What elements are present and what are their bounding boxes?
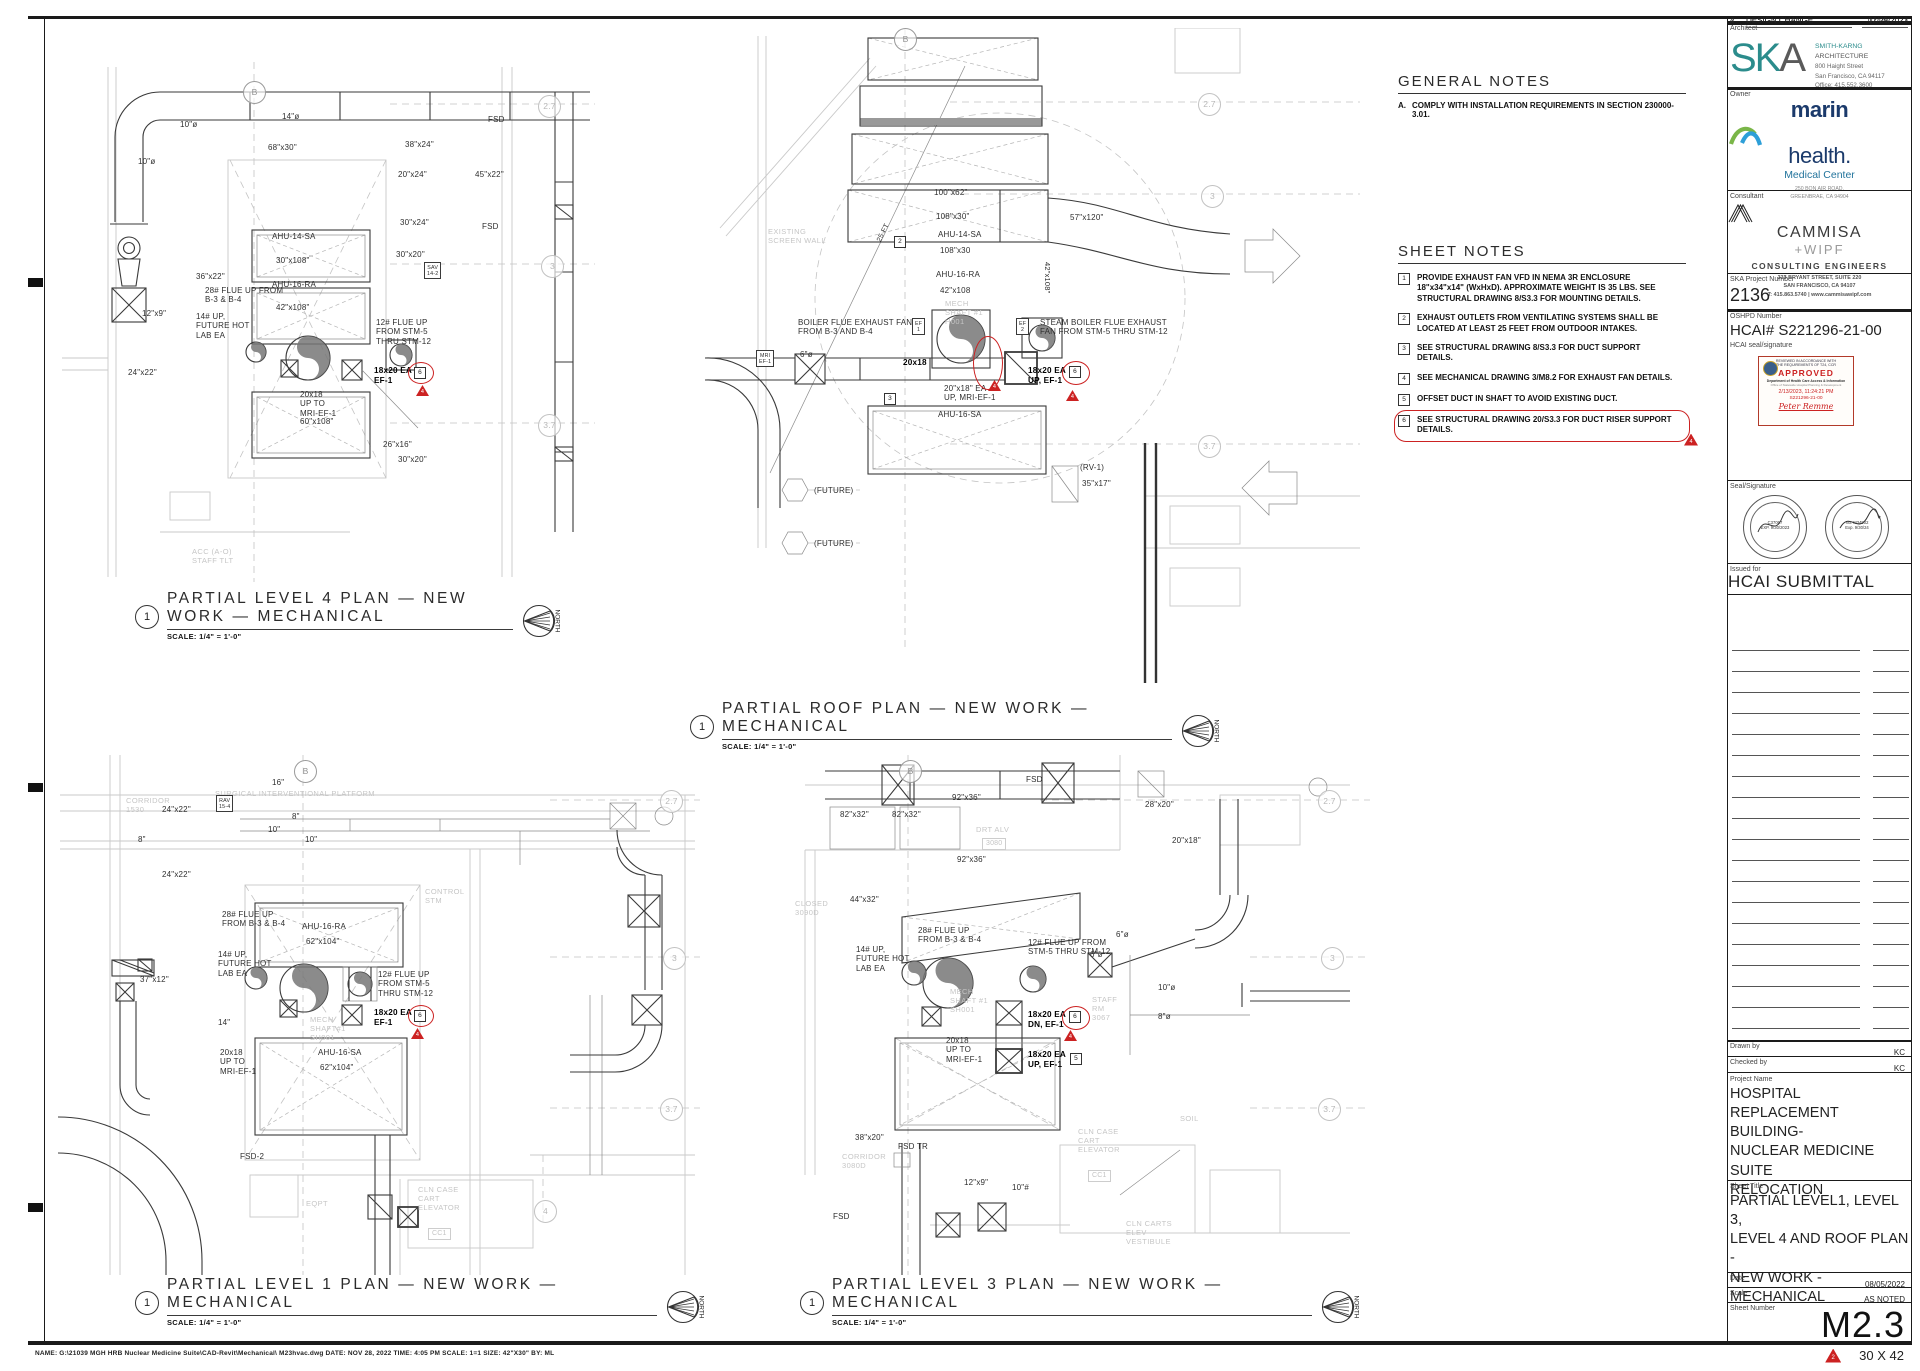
plan-annotation: 14"ø bbox=[282, 112, 299, 121]
plan-annotation: 4 bbox=[411, 1028, 424, 1039]
plan-annotation: MECH SHAFT#1 SH001 bbox=[310, 1016, 346, 1043]
plan-annotation: 12"x9" bbox=[142, 309, 166, 318]
plan-annotation: (RV-1) bbox=[1080, 463, 1104, 472]
plan-annotation: 18x20 EA UP, EF-1 bbox=[1028, 366, 1066, 385]
svg-text:NORTH: NORTH bbox=[1213, 719, 1220, 742]
revision-row: 4 DESIGN CHANGE 01/25/2023 bbox=[1730, 16, 1908, 28]
plan-annotation: 10"# bbox=[1012, 1183, 1029, 1192]
note-text: EXHAUST OUTLETS FROM VENTILATING SYSTEMS… bbox=[1417, 313, 1675, 334]
general-notes: GENERAL NOTES A. COMPLY WITH INSTALLATIO… bbox=[1398, 73, 1686, 119]
plan-annotation: AHU-14-SA bbox=[272, 232, 316, 241]
plan-annotation: 26"x16" bbox=[383, 440, 412, 449]
plan-annotation: 10"ø bbox=[180, 120, 197, 129]
plan-annotation: SAV 14-2 bbox=[424, 262, 441, 279]
title-rule bbox=[722, 739, 1172, 740]
scale-label: Scale bbox=[1730, 1290, 1748, 1297]
plan-annotation: 14# UP, FUTURE HOT LAB EA bbox=[218, 950, 272, 978]
sheet-note-item: 3 SEE STRUCTURAL DRAWING 8/S3.3 FOR DUCT… bbox=[1398, 343, 1686, 364]
plan-title: 1 PARTIAL LEVEL 1 PLAN — NEW WORK — MECH… bbox=[135, 1276, 657, 1327]
plan-annotation: 37"x12" bbox=[140, 975, 169, 984]
plan-annotation: CLN CASE CART ELEVATOR bbox=[1078, 1128, 1120, 1155]
plan-annotation: 4 bbox=[416, 385, 429, 396]
plan-annotation: 10"ø bbox=[1158, 983, 1175, 992]
plan-annotation: 42"x108 bbox=[940, 286, 971, 295]
plan-annotation: (FUTURE) bbox=[814, 539, 853, 548]
plan-annotation: CC1 bbox=[428, 1228, 451, 1240]
sheet-number-label: Sheet Number bbox=[1730, 1305, 1775, 1312]
plan-annotation: ACC (A-O) STAFF TLT bbox=[192, 548, 234, 566]
sheet-note-item: 1 PROVIDE EXHAUST FAN VFD IN NEMA 3R ENC… bbox=[1398, 273, 1686, 304]
note-text: SEE MECHANICAL DRAWING 3/M8.2 FOR EXHAUS… bbox=[1417, 373, 1675, 383]
plan-annotation: 10" bbox=[305, 835, 317, 844]
plan-annotation: CORRIDOR 3080D bbox=[842, 1153, 886, 1171]
approval-date: 2/13/2023, 11:24:21 PM bbox=[1759, 389, 1853, 395]
plan-annotation: 12# FLUE UP FROM STM-5 THRU STM-12 bbox=[378, 970, 433, 998]
plan-annotation: 45"x22" bbox=[475, 170, 504, 179]
plan-annotation: 20"x24" bbox=[398, 170, 427, 179]
title-rule bbox=[832, 1315, 1312, 1316]
plan-annotation: 6 bbox=[414, 367, 426, 379]
plan-scale: SCALE: 1/4" = 1'-0" bbox=[167, 1318, 657, 1327]
plan-title-text: PARTIAL LEVEL 3 PLAN — NEW WORK — MECHAN… bbox=[832, 1276, 1312, 1312]
plan-title-text: PARTIAL LEVEL 1 PLAN — NEW WORK — MECHAN… bbox=[167, 1276, 657, 1312]
plan-annotation: 6 bbox=[414, 1010, 426, 1022]
note-number-box: 3 bbox=[1398, 343, 1410, 355]
revision-number: 4 bbox=[1730, 16, 1746, 28]
plan-annotation: 20x18 UP TO MRI-EF-1 bbox=[946, 1036, 982, 1064]
hcai-number: HCAI# S221296-21-00 bbox=[1730, 322, 1882, 339]
plan-annotation bbox=[973, 336, 1003, 390]
plan-annotations: B10"ø14"ø10"ø68"x30"38"x24"FSD20"x24"45"… bbox=[0, 0, 1920, 1371]
plan-annotation: 12"x9" bbox=[964, 1178, 988, 1187]
plan-annotation: 4 bbox=[1064, 1030, 1077, 1041]
general-notes-title: GENERAL NOTES bbox=[1398, 73, 1686, 94]
plan-annotation: B bbox=[894, 28, 917, 51]
ska-project-label: SKA Project Number bbox=[1730, 276, 1794, 283]
plan-annotation: 3.7 bbox=[660, 1098, 683, 1121]
plan-annotation: 2.7 bbox=[1318, 790, 1341, 813]
plan-annotation: CLOSED 3090D bbox=[795, 900, 828, 918]
plan-annotation: SOIL bbox=[1180, 1115, 1199, 1124]
architect-seal: C37067 EXP. 9/30/2023 bbox=[1743, 495, 1807, 559]
plan-annotation: 5 bbox=[1070, 1053, 1082, 1065]
plan-annotation: 6 bbox=[1069, 366, 1081, 378]
note-text: SEE STRUCTURAL DRAWING 8/S3.3 FOR DUCT S… bbox=[1417, 343, 1675, 364]
plan-annotation: DRT ALV bbox=[976, 826, 1009, 835]
plan-annotation: 3 bbox=[541, 255, 564, 278]
plan-title: 1 PARTIAL LEVEL 3 PLAN — NEW WORK — MECH… bbox=[800, 1276, 1312, 1327]
owner-label: Owner bbox=[1730, 91, 1751, 98]
north-arrow-icon: NORTH bbox=[521, 601, 561, 641]
plan-annotation: 8" bbox=[138, 835, 146, 844]
plan-annotation: 3 bbox=[1201, 185, 1224, 208]
plan-annotation: 24"x22" bbox=[162, 870, 191, 879]
plan-title-text: PARTIAL ROOF PLAN — NEW WORK — MECHANICA… bbox=[722, 700, 1172, 736]
architect-info: SMITH-KARNG ARCHITECTURE 800 Haight Stre… bbox=[1815, 42, 1912, 90]
plan-annotation: 100"x62" bbox=[934, 188, 968, 197]
plan-annotation: 8"ø bbox=[1158, 1012, 1171, 1021]
plan-annotation: 6"ø bbox=[1090, 950, 1103, 959]
plan-annotation: 18x20 EA UP, EF-1 bbox=[1028, 1050, 1066, 1069]
north-arrow-icon: NORTH bbox=[665, 1287, 705, 1327]
plan-annotation: 35"x17" bbox=[1082, 479, 1111, 488]
plan-annotation: FSD-2 bbox=[240, 1152, 264, 1161]
plan-annotation: 6"ø bbox=[1116, 930, 1129, 939]
sheet-notes: SHEET NOTES 1 PROVIDE EXHAUST FAN VFD IN… bbox=[1398, 243, 1686, 436]
revision-triangle-icon: 2 bbox=[1825, 1349, 1841, 1363]
project-name-label: Project Name bbox=[1730, 1076, 1772, 1083]
plan-scale: SCALE: 1/4" = 1'-0" bbox=[167, 632, 513, 641]
plan-annotation: 12# FLUE UP FROM STM-5 THRU STM-12 bbox=[376, 318, 431, 346]
plan-annotation: 30"x24" bbox=[400, 218, 429, 227]
plan-annotation: B bbox=[294, 760, 317, 783]
detail-number-bubble: 1 bbox=[135, 1291, 159, 1315]
note-number-box: 4 bbox=[1398, 373, 1410, 385]
note-number-box: 6 bbox=[1398, 415, 1410, 427]
plan-annotation: 10" bbox=[268, 825, 280, 834]
plan-annotation: B bbox=[899, 760, 922, 783]
oshpd-label: OSHPD Number bbox=[1730, 313, 1782, 320]
note-text: SEE STRUCTURAL DRAWING 20/S3.3 FOR DUCT … bbox=[1417, 415, 1675, 436]
plan-annotation: 3.7 bbox=[1318, 1098, 1341, 1121]
approval-number: S221296-21-00 bbox=[1759, 396, 1853, 401]
plan-annotation: 8" bbox=[292, 812, 300, 821]
plan-annotation: 108"x30" bbox=[936, 212, 970, 221]
plan-annotation: 3.7 bbox=[1198, 435, 1221, 458]
plan-annotation: EF 2 bbox=[1016, 318, 1029, 335]
drawn-by-label: Drawn by bbox=[1730, 1043, 1760, 1050]
plan-annotation: 3080 bbox=[982, 838, 1006, 850]
plan-annotation: 38"x20" bbox=[855, 1133, 884, 1142]
plan-annotation: STEAM BOILER FLUE EXHAUST FAN FROM STM-5… bbox=[1040, 318, 1168, 337]
sheet-title: PARTIAL LEVEL1, LEVEL 3, LEVEL 4 AND ROO… bbox=[1730, 1192, 1912, 1307]
plan-annotation: 62"x104" bbox=[306, 937, 340, 946]
ska-project-number: 2136 bbox=[1730, 285, 1770, 306]
plan-scale: SCALE: 1/4" = 1'-0" bbox=[722, 742, 1172, 751]
plan-annotation: 28# FLUE UP FROM B-3 & B-4 bbox=[222, 910, 285, 929]
plan-annotation: EF 1 bbox=[912, 318, 925, 335]
title-rule bbox=[167, 629, 513, 630]
plan-annotation: (FUTURE) bbox=[814, 486, 853, 495]
plan-annotation: MECH SHAFT #1 H001 bbox=[945, 300, 983, 327]
plan-annotation: FSD bbox=[1026, 775, 1043, 784]
checked-by-label: Checked by bbox=[1730, 1059, 1767, 1066]
plan-annotation: CLN CARTS ELEV VESTIBULE bbox=[1126, 1220, 1172, 1247]
title-block: Architect SKA SMITH-KARNG ARCHITECTURE 8… bbox=[1727, 16, 1912, 1341]
plan-annotation: AHU-16-RA bbox=[936, 270, 980, 279]
svg-text:NORTH: NORTH bbox=[1353, 1295, 1360, 1318]
issued-for-value: HCAI SUBMITTAL bbox=[1728, 572, 1874, 592]
plan-annotation: 2 bbox=[894, 236, 906, 248]
plan-annotation: 10"ø bbox=[138, 157, 155, 166]
title-rule bbox=[167, 1315, 657, 1316]
detail-number-bubble: 1 bbox=[800, 1291, 824, 1315]
plan-annotation: AHU-14-SA bbox=[938, 230, 982, 239]
consultant-label: Consultant bbox=[1730, 193, 1763, 200]
plan-annotation: 62"x104" bbox=[320, 1063, 354, 1072]
hcai-approval-stamp: REVIEWED IN ACCORDANCE WITH THE REQUIREM… bbox=[1758, 356, 1854, 426]
plan-title: 1 PARTIAL LEVEL 4 PLAN — NEW WORK — MECH… bbox=[135, 590, 513, 641]
note-number-box: 1 bbox=[1398, 273, 1410, 285]
plan-annotation: 6"ø bbox=[800, 350, 813, 359]
blank-revision-rows-dates bbox=[1873, 630, 1909, 1038]
plan-annotation: 2.7 bbox=[660, 790, 683, 813]
sheet-note-item: 5 OFFSET DUCT IN SHAFT TO AVOID EXISTING… bbox=[1398, 394, 1686, 406]
sheet-number: M2.3 bbox=[1821, 1304, 1905, 1346]
plan-annotation: 14# UP, FUTURE HOT LAB EA bbox=[856, 945, 910, 973]
date-label: Date bbox=[1730, 1275, 1745, 1282]
plan-annotation: EQPT bbox=[306, 1200, 328, 1209]
plan-annotation: 2.7 bbox=[1198, 93, 1221, 116]
plan-annotation: MRI EF-1 bbox=[756, 350, 774, 367]
general-note-item: A. COMPLY WITH INSTALLATION REQUIREMENTS… bbox=[1398, 101, 1686, 119]
plan-annotation: 24"x22" bbox=[162, 805, 191, 814]
plan-annotation: 3 bbox=[1321, 947, 1344, 970]
plan-title: 1 PARTIAL ROOF PLAN — NEW WORK — MECHANI… bbox=[690, 700, 1172, 751]
plan-title-text2: WORK — MECHANICAL bbox=[167, 608, 513, 626]
plan-annotation: SURGICAL INTERVENTIONAL PLATFORM bbox=[215, 790, 375, 799]
plan-annotation: CONTROL STM bbox=[425, 888, 464, 906]
plan-annotation: AHU-16-RA bbox=[302, 922, 346, 931]
plan-annotation: 44"x32" bbox=[850, 895, 879, 904]
engineer-seal: No. M34902 Exp. 9/30/24 bbox=[1825, 495, 1889, 559]
plan-annotation: FSD bbox=[488, 115, 505, 124]
plan-annotation: 28"x20" bbox=[1145, 800, 1174, 809]
plan-annotation: MECH SHAFT #1 SH001 bbox=[950, 988, 988, 1015]
drawing-sheet: B10"ø14"ø10"ø68"x30"38"x24"FSD20"x24"45"… bbox=[0, 0, 1920, 1371]
plan-annotation: FSD bbox=[833, 1212, 850, 1221]
plan-annotation: 36"x22" bbox=[196, 272, 225, 281]
plan-annotation: 4 bbox=[1066, 390, 1079, 401]
plan-annotation: 30"x20" bbox=[398, 455, 427, 464]
plan-annotation: 28# FLUE UP FROM B-3 & B-4 bbox=[918, 926, 981, 945]
plan-annotation: 28# FLUE UP FROM B-3 & B-4 bbox=[205, 286, 283, 305]
plan-annotation: 14" bbox=[218, 1018, 230, 1027]
plan-annotation: CC1 bbox=[1088, 1170, 1111, 1182]
plan-annotation: 108"x30 bbox=[940, 246, 971, 255]
note-text: OFFSET DUCT IN SHAFT TO AVOID EXISTING D… bbox=[1417, 394, 1675, 404]
plan-annotation: 92"x36" bbox=[957, 855, 986, 864]
north-arrow-icon: NORTH bbox=[1320, 1287, 1360, 1327]
seal-label: Seal/Signature bbox=[1730, 483, 1776, 490]
plan-annotation: 4 bbox=[534, 1200, 557, 1223]
plan-annotation: 3.7 bbox=[538, 414, 561, 437]
note-letter: A. bbox=[1398, 101, 1406, 119]
sheet-note-item: 6 SEE STRUCTURAL DRAWING 20/S3.3 FOR DUC… bbox=[1398, 415, 1686, 436]
plan-annotation: 30"x20" bbox=[396, 250, 425, 259]
plan-title-text: PARTIAL LEVEL 4 PLAN — NEW bbox=[167, 590, 513, 608]
sheet-size-badge: 2 30 X 42 bbox=[1825, 1348, 1904, 1363]
plan-annotation: 3 bbox=[884, 393, 896, 405]
plan-annotation: 42"x108" bbox=[1042, 262, 1051, 294]
plan-annotation: 20x18 UP TO MRI-EF-1 bbox=[220, 1048, 256, 1076]
sheet-note-item: 4 SEE MECHANICAL DRAWING 3/M8.2 FOR EXHA… bbox=[1398, 373, 1686, 385]
plan-annotation: 20"x18" bbox=[1172, 836, 1201, 845]
approver-signature: Peter Remme bbox=[1759, 402, 1853, 411]
sheet-note-item: 2 EXHAUST OUTLETS FROM VENTILATING SYSTE… bbox=[1398, 313, 1686, 334]
detail-number-bubble: 1 bbox=[690, 715, 714, 739]
plan-annotation: 92"x36" bbox=[952, 793, 981, 802]
sheet-size: 30 X 42 bbox=[1859, 1348, 1904, 1363]
ska-logo: SKA bbox=[1730, 36, 1804, 81]
plan-annotation: 16" bbox=[272, 778, 284, 787]
plan-annotation: 20x18 UP TO MRI-EF-1 bbox=[300, 390, 336, 418]
plan-annotation: RAV 15-4 bbox=[216, 795, 233, 812]
svg-text:NORTH: NORTH bbox=[698, 1295, 705, 1318]
note-number-box: 2 bbox=[1398, 313, 1410, 325]
plan-annotation: 18x20 EA EF-1 bbox=[374, 366, 412, 385]
plan-annotation: 20x18 bbox=[903, 358, 927, 368]
plan-scale: SCALE: 1/4" = 1'-0" bbox=[832, 1318, 1312, 1327]
hcai-seal-label: HCAI seal/signature bbox=[1730, 342, 1792, 349]
plan-annotation: AHU-16-SA bbox=[938, 410, 982, 419]
hcai-seal-icon bbox=[1763, 361, 1778, 376]
plan-annotation: AHU-16-SA bbox=[318, 1048, 362, 1057]
north-arrow-icon: NORTH bbox=[1180, 711, 1220, 751]
note-number-box: 5 bbox=[1398, 394, 1410, 406]
plan-annotation: 60"x108" bbox=[300, 417, 334, 426]
marinhealth-logo: marin health. Medical Center 250 BON AIR… bbox=[1727, 100, 1912, 201]
note-text: PROVIDE EXHAUST FAN VFD IN NEMA 3R ENCLO… bbox=[1417, 273, 1675, 304]
plan-annotation: 24"x22" bbox=[128, 368, 157, 377]
plan-annotation: EXISTING SCREEN WALL bbox=[768, 228, 826, 246]
plan-annotation: STAFF RM 3067 bbox=[1092, 996, 1117, 1023]
detail-number-bubble: 1 bbox=[135, 605, 159, 629]
plan-annotation: 82"x32" bbox=[892, 810, 921, 819]
plot-info: NAME: G:\21039 MGH HRB Nuclear Medicine … bbox=[35, 1350, 554, 1357]
plan-annotation: 38"x24" bbox=[405, 140, 434, 149]
revision-date: 01/25/2023 bbox=[1862, 16, 1908, 28]
revision-description: DESIGN CHANGE bbox=[1746, 16, 1852, 28]
plan-annotation: 3 bbox=[663, 947, 686, 970]
plan-annotation: 14# UP, FUTURE HOT LAB EA bbox=[196, 312, 250, 340]
plan-annotation: 2.7 bbox=[538, 95, 561, 118]
plan-annotation: FSD TR bbox=[898, 1142, 928, 1151]
plan-annotation: 57"x120" bbox=[1070, 213, 1104, 222]
svg-text:NORTH: NORTH bbox=[554, 609, 561, 632]
sheet-title-label: Sheet Title bbox=[1730, 1183, 1763, 1190]
plan-annotation: 30"x108" bbox=[276, 256, 310, 265]
plan-annotation: 18x20 EA DN, EF-1 bbox=[1028, 1010, 1066, 1029]
plan-annotation: 68"x30" bbox=[268, 143, 297, 152]
sheet-notes-title: SHEET NOTES bbox=[1398, 243, 1686, 264]
plan-annotation: FSD bbox=[482, 222, 499, 231]
note-text: COMPLY WITH INSTALLATION REQUIREMENTS IN… bbox=[1412, 101, 1686, 119]
plan-annotation: 25 FT bbox=[876, 223, 892, 244]
plan-annotation: 6 bbox=[1069, 1011, 1081, 1023]
plan-annotation: CLN CASE CART ELEVATOR bbox=[418, 1186, 460, 1213]
plan-annotation: 82"x32" bbox=[840, 810, 869, 819]
plan-annotation: BOILER FLUE EXHAUST FAN FROM B-3 AND B-4 bbox=[798, 318, 912, 337]
blank-revision-rows bbox=[1732, 630, 1860, 1038]
plan-annotation: B bbox=[243, 81, 266, 104]
plan-annotation: 18x20 EA EF-1 bbox=[374, 1008, 412, 1027]
